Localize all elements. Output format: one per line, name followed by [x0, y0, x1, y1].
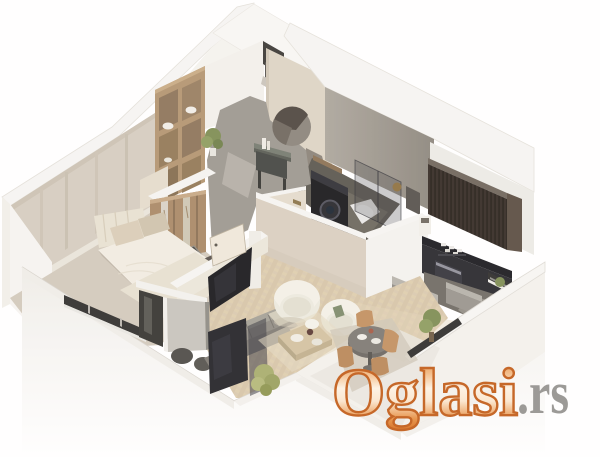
svg-text:.rs: .rs — [517, 360, 569, 426]
svg-text:Oglasi: Oglasi — [332, 354, 518, 430]
